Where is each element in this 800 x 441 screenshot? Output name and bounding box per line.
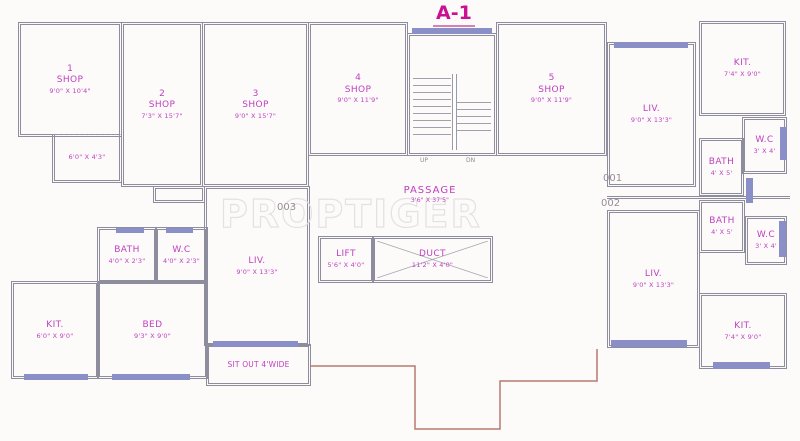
unit-divider-wall [607,196,790,199]
room-bed-003: BED 9'3" X 9'0" [97,281,208,379]
room-sitout-003: SIT OUT 4'WIDE [206,344,311,386]
duct-dim: 11'2" X 4'0" [412,261,453,269]
liv-001-dim: 9'0" X 13'3" [631,116,672,124]
room-shop-2: 2 SHOP 7'3" X 15'7" [121,22,203,187]
bath-002-dim: 4' X 5' [709,228,735,236]
staircase [407,33,497,156]
stair-flight-up [413,78,451,137]
unit-number-001: 001 [603,173,622,184]
kit-001-name: KIT. [724,58,761,70]
duct-label: DUCT 11'2" X 4'0" [412,249,453,269]
room-shop-5: 5 SHOP 9'0" X 11'9" [496,22,607,156]
bath-003-dim: 4'0" X 2'3" [109,257,146,265]
window-liv-001-top [614,42,688,48]
shop-4-name: SHOP [337,85,378,97]
room-shop-1-label: 1 SHOP 9'0" X 10'4" [49,64,90,96]
wc-003-label: W.C 4'0" X 2'3" [163,245,200,265]
shop-3-name: SHOP [235,100,276,112]
room-bath-003: BATH 4'0" X 2'3" [97,227,157,283]
shop-2-name: SHOP [141,100,182,112]
wc-001-label: W.C 3' X 4' [754,135,776,155]
room-wc-003: W.C 4'0" X 2'3" [155,227,208,283]
shop-3-number: 3 [235,89,276,101]
room-shop-3-label: 3 SHOP 9'0" X 15'7" [235,89,276,121]
bed-003-dim: 9'3" X 9'0" [134,332,171,340]
wc-001-name: W.C [754,135,776,147]
room-duct: DUCT 11'2" X 4'0" [372,236,493,283]
bath-001-name: BATH [709,157,735,169]
kit-002-label: KIT. 7'4" X 9'0" [725,321,762,341]
room-shop-3: 3 SHOP 9'0" X 15'7" [202,22,309,187]
shop-5-number: 5 [531,73,572,85]
window-bed-003-bottom [112,374,190,380]
room-shop-5-label: 5 SHOP 9'0" X 11'9" [531,73,572,105]
kit-002-dim: 7'4" X 9'0" [725,333,762,341]
window-liv-002-bottom [611,340,687,347]
window-bath-001-right [746,178,753,203]
kit-003-label: KIT. 6'0" X 9'0" [37,320,74,340]
bath-002-label: BATH 4' X 5' [709,216,735,236]
bath-001-dim: 4' X 5' [709,169,735,177]
room-kit-002: KIT. 7'4" X 9'0" [699,293,787,369]
wc-002-name: W.C [755,230,777,242]
bed-003-name: BED [134,320,171,332]
sitout-label: SIT OUT 4'WIDE [227,360,289,370]
room-shop-1: 1 SHOP 9'0" X 10'4" [18,22,122,137]
bed-003-label: BED 9'3" X 9'0" [134,320,171,340]
kit-001-label: KIT. 7'4" X 9'0" [724,58,761,78]
stair-divider-wall [452,74,457,150]
floor-plan-canvas: PROPTIGER A-1 1 SHOP 9'0" X 10'4" 6'0" X… [0,0,800,441]
bath-002-name: BATH [709,216,735,228]
lift-label: LIFT 5'6" X 4'0" [328,249,365,269]
liv-001-name: LIV. [631,104,672,116]
wc-002-label: W.C 3' X 4' [755,230,777,250]
shop-5-name: SHOP [531,85,572,97]
shop-3-dim: 9'0" X 15'7" [235,112,276,120]
liv-002-label: LIV. 9'0" X 13'3" [633,269,674,289]
shop-1-annex-dim: 6'0" X 4'3" [69,153,106,161]
room-kit-001: KIT. 7'4" X 9'0" [699,21,786,116]
wc-002-dim: 3' X 4' [755,242,777,250]
wc-001-dim: 3' X 4' [754,147,776,155]
window-bath-003-top [116,228,144,233]
room-kit-003: KIT. 6'0" X 9'0" [11,281,99,379]
liv-003-dim: 9'0" X 13'3" [236,268,277,276]
wc-003-name: W.C [163,245,200,257]
room-shop-2-label: 2 SHOP 7'3" X 15'7" [141,89,182,121]
room-shop-4-label: 4 SHOP 9'0" X 11'9" [337,73,378,105]
window-stairs-top [412,28,492,34]
room-liv-001: LIV. 9'0" X 13'3" [607,42,696,187]
stairs-dn-label: DN [466,157,475,164]
window-wc-002-right [779,221,786,257]
bath-001-label: BATH 4' X 5' [709,157,735,177]
liv-001-label: LIV. 9'0" X 13'3" [631,104,672,124]
room-liv-002: LIV. 9'0" X 13'3" [607,210,700,348]
shop-1-name: SHOP [49,75,90,87]
room-lift: LIFT 5'6" X 4'0" [318,236,374,283]
lift-name: LIFT [328,249,365,261]
shop-5-dim: 9'0" X 11'9" [531,96,572,104]
bath-003-name: BATH [109,245,146,257]
shop-1-annex-label: 6'0" X 4'3" [69,153,106,161]
window-kit-003-bottom [24,374,88,380]
shop-1-number: 1 [49,64,90,76]
duct-name: DUCT [412,249,453,261]
stair-flight-down [453,102,491,137]
shop-1-dim: 9'0" X 10'4" [49,87,90,95]
sitout-name: SIT OUT 4'WIDE [227,360,289,370]
kit-003-name: KIT. [37,320,74,332]
liv-002-name: LIV. [633,269,674,281]
passage-name: PASSAGE [365,184,495,197]
wc-003-dim: 4'0" X 2'3" [163,257,200,265]
plan-title: A-1 [433,2,475,27]
passage-label: PASSAGE 3'6" X 37'5" [365,184,495,205]
window-wc-001-right [780,127,787,160]
passage-dim: 3'6" X 37'5" [365,197,495,205]
shop-2-dim: 7'3" X 15'7" [141,112,182,120]
shop-4-dim: 9'0" X 11'9" [337,96,378,104]
shop-4-number: 4 [337,73,378,85]
room-shop-4: 4 SHOP 9'0" X 11'9" [308,22,408,156]
window-wc-003-top [166,228,193,233]
liv-002-dim: 9'0" X 13'3" [633,281,674,289]
bath-003-label: BATH 4'0" X 2'3" [109,245,146,265]
liv-003-label: LIV. 9'0" X 13'3" [236,256,277,276]
unit-number-002: 002 [601,198,620,209]
window-kit-002-bottom [713,362,770,369]
corridor-step-wall [153,186,205,203]
lift-dim: 5'6" X 4'0" [328,261,365,269]
window-sitout-top [213,341,298,347]
room-shop-1-annex: 6'0" X 4'3" [52,134,122,183]
room-bath-002: BATH 4' X 5' [699,200,745,253]
shop-2-number: 2 [141,89,182,101]
liv-003-name: LIV. [236,256,277,268]
stairs-up-label: UP [420,157,428,164]
kit-001-dim: 7'4" X 9'0" [724,70,761,78]
kit-003-dim: 6'0" X 9'0" [37,332,74,340]
room-bath-001: BATH 4' X 5' [699,138,744,196]
kit-002-name: KIT. [725,321,762,333]
unit-number-003: 003 [277,202,296,213]
